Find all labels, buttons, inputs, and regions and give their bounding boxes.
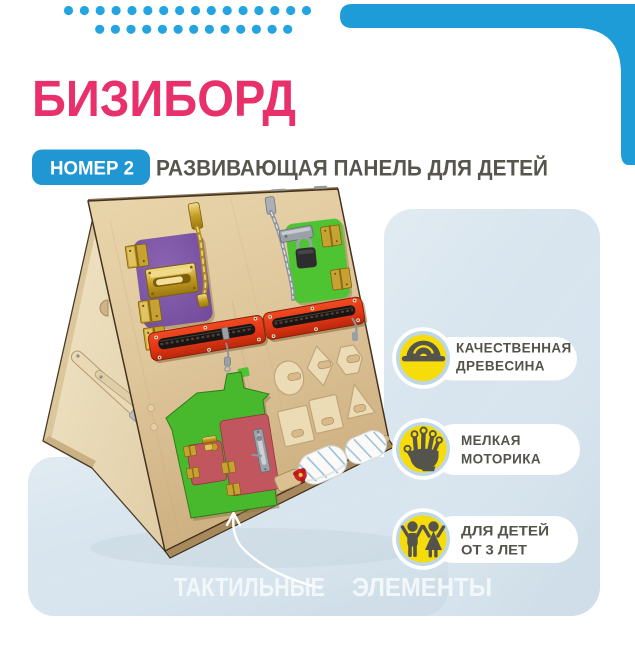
svg-text:МЕЛКАЯ: МЕЛКАЯ xyxy=(461,433,521,448)
svg-text:БИЗИБОРД: БИЗИБОРД xyxy=(32,70,296,127)
svg-text:ТАКТИЛЬНЫЕ: ТАКТИЛЬНЫЕ xyxy=(174,572,325,602)
svg-text:НОМЕР 2: НОМЕР 2 xyxy=(50,158,134,180)
svg-text:МОТОРИКА: МОТОРИКА xyxy=(461,452,541,467)
svg-text:ДЛЯ ДЕТЕЙ: ДЛЯ ДЕТЕЙ xyxy=(461,524,549,539)
svg-text:ОТ 3 ЛЕТ: ОТ 3 ЛЕТ xyxy=(461,543,528,558)
svg-text:ДРЕВЕСИНА: ДРЕВЕСИНА xyxy=(456,359,545,374)
svg-text:КАЧЕСТВЕННАЯ: КАЧЕСТВЕННАЯ xyxy=(456,341,572,356)
svg-text:РАЗВИВАЮЩАЯ ПАНЕЛЬ ДЛЯ ДЕТЕЙ: РАЗВИВАЮЩАЯ ПАНЕЛЬ ДЛЯ ДЕТЕЙ xyxy=(156,156,548,181)
svg-text:ЭЛЕМЕНТЫ: ЭЛЕМЕНТЫ xyxy=(352,572,492,602)
